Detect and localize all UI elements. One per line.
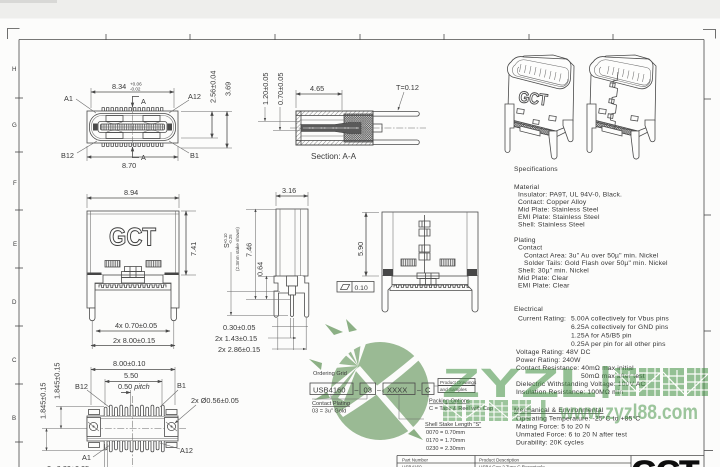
svg-text:Contact: Copper Alloy: Contact: Copper Alloy	[518, 199, 587, 206]
svg-text:Mid Plate: Clear: Mid Plate: Clear	[518, 275, 569, 282]
svg-text:8.94: 8.94	[124, 188, 138, 197]
svg-text:A1: A1	[82, 453, 91, 462]
svg-text:5.00A collectively for Vbus pi: 5.00A collectively for Vbus pins	[571, 316, 669, 323]
svg-text:2x 1.43±0.15: 2x 1.43±0.15	[215, 334, 257, 343]
svg-text:–: –	[417, 387, 421, 394]
svg-text:3.16: 3.16	[282, 186, 296, 195]
svg-text:0.50 pitch: 0.50 pitch	[118, 382, 150, 391]
svg-text:-0.25: -0.25	[228, 234, 233, 244]
svg-text:C: C	[12, 357, 17, 364]
svg-text:1.20±0.05: 1.20±0.05	[261, 73, 270, 105]
svg-text:www.zyzl88.com: www.zyzl88.com	[559, 401, 698, 424]
svg-text:Section: A-A: Section: A-A	[311, 152, 357, 161]
svg-text:Shell: 30µ" min. Nickel: Shell: 30µ" min. Nickel	[518, 268, 589, 275]
svg-text:03 = 3u" Gold: 03 = 3u" Gold	[312, 409, 346, 415]
svg-text:7.41: 7.41	[189, 242, 198, 256]
svg-text:4.65: 4.65	[310, 84, 324, 93]
svg-text:0170 = 1.70mm: 0170 = 1.70mm	[426, 438, 465, 444]
svg-text:Durability: 20K cycles: Durability: 20K cycles	[516, 440, 584, 447]
svg-text:Ordering Grid: Ordering Grid	[313, 371, 347, 377]
svg-text:EMI Plate: Stainless Steel: EMI Plate: Stainless Steel	[518, 214, 600, 221]
svg-text:B12: B12	[75, 382, 88, 391]
svg-text:2.56±0.04: 2.56±0.04	[209, 71, 218, 103]
svg-text:1.845±0.15: 1.845±0.15	[39, 383, 48, 419]
svg-text:0.25A per pin for all other pi: 0.25A per pin for all other pins	[571, 341, 666, 348]
svg-text:Mating Force: 5 to 20 N: Mating Force: 5 to 20 N	[516, 424, 590, 431]
svg-text:0.30±0.05: 0.30±0.05	[223, 323, 255, 332]
svg-text:2x 8.00±0.15: 2x 8.00±0.15	[113, 336, 155, 345]
svg-text:Contact Plating: Contact Plating	[312, 401, 350, 407]
svg-text:A: A	[141, 153, 146, 162]
svg-text:1.25A for A5/B5 pin: 1.25A for A5/B5 pin	[571, 333, 632, 340]
svg-text:0070 = 0.70mm: 0070 = 0.70mm	[426, 430, 465, 436]
svg-text:XXXX: XXXX	[387, 386, 407, 395]
svg-text:–: –	[377, 387, 381, 394]
svg-text:Shell: Stainless Steel: Shell: Stainless Steel	[518, 222, 585, 229]
svg-text:USB4160: USB4160	[313, 386, 346, 395]
svg-text:A12: A12	[188, 92, 201, 101]
svg-text:–: –	[355, 387, 359, 394]
svg-text:C: C	[425, 386, 431, 395]
svg-text:EMI Plate: Clear: EMI Plate: Clear	[518, 283, 570, 290]
svg-text:Specifications: Specifications	[514, 166, 558, 173]
svg-text:6.25A collectively for GND pin: 6.25A collectively for GND pins	[571, 324, 669, 331]
svg-text:2x 2.86±0.15: 2x 2.86±0.15	[218, 345, 260, 354]
svg-text:8.34: 8.34	[112, 82, 126, 91]
svg-text:Unmated Force: 6 to 20 N after: Unmated Force: 6 to 20 N after test	[516, 432, 627, 439]
svg-text:Voltage Rating: 48V DC: Voltage Rating: 48V DC	[516, 349, 591, 356]
svg-text:Material: Material	[514, 184, 540, 191]
svg-text:B1: B1	[177, 381, 186, 390]
svg-text:GCT: GCT	[632, 455, 699, 467]
svg-text:F: F	[13, 180, 17, 187]
svg-text:8.70: 8.70	[122, 161, 136, 170]
svg-text:(2.3mm stake shown): (2.3mm stake shown)	[235, 227, 240, 271]
svg-text:Insulator: PA9T, UL 94V-0, Bl: Insulator: PA9T, UL 94V-0, Black.	[518, 192, 622, 199]
svg-text:0.10: 0.10	[355, 285, 368, 292]
svg-text:B12: B12	[61, 151, 74, 160]
svg-text:A12: A12	[180, 446, 193, 455]
svg-text:0230 = 2.30mm: 0230 = 2.30mm	[426, 446, 465, 452]
svg-text:Plating: Plating	[514, 237, 536, 244]
svg-text:Mid Plate: Stainless Steel: Mid Plate: Stainless Steel	[518, 207, 599, 214]
svg-text:D: D	[12, 299, 17, 306]
svg-text:-0.02: -0.02	[130, 87, 141, 92]
svg-text:E: E	[13, 241, 17, 248]
svg-text:B: B	[12, 415, 16, 422]
svg-text:3.69: 3.69	[224, 82, 233, 96]
svg-text:8.00±0.10: 8.00±0.10	[113, 359, 145, 368]
svg-text:GCT: GCT	[109, 224, 156, 252]
svg-text:5.90: 5.90	[356, 242, 365, 256]
svg-text:Part Number: Part Number	[402, 458, 429, 463]
svg-text:A: A	[141, 97, 146, 106]
svg-text:Contact: Contact	[518, 245, 542, 252]
svg-text:Shell Stake Length "S": Shell Stake Length "S"	[425, 422, 481, 428]
svg-text:ZYZL: ZYZL	[442, 360, 597, 406]
svg-text:1.845±0.15: 1.845±0.15	[53, 363, 62, 399]
svg-text:Contact Area: 3u" Au over 50µ": Contact Area: 3u" Au over 50µ" min. Nick…	[524, 253, 659, 260]
svg-text:Electrical: Electrical	[514, 306, 543, 313]
svg-text:Solder Tails: Gold Flash over: Solder Tails: Gold Flash over 50µ" min. …	[524, 260, 668, 267]
svg-text:B1: B1	[190, 151, 199, 160]
svg-text:A1: A1	[64, 94, 73, 103]
svg-text:2x Ø0.56±0.05: 2x Ø0.56±0.05	[191, 396, 239, 405]
svg-text:H: H	[12, 66, 16, 73]
svg-text:T=0.12: T=0.12	[396, 83, 419, 92]
svg-text:0.70±0.05: 0.70±0.05	[276, 73, 285, 105]
svg-text:G: G	[12, 122, 17, 129]
svg-text:4x 0.70±0.05: 4x 0.70±0.05	[115, 321, 157, 330]
svg-text:Current Rating:: Current Rating:	[518, 316, 566, 323]
svg-text:0.64: 0.64	[256, 262, 265, 276]
svg-text:7.46: 7.46	[245, 243, 254, 257]
svg-text:Product Description: Product Description	[479, 458, 520, 463]
svg-text:GCT: GCT	[518, 89, 549, 109]
svg-text:03: 03	[364, 386, 372, 395]
svg-text:5.50: 5.50	[124, 371, 138, 380]
